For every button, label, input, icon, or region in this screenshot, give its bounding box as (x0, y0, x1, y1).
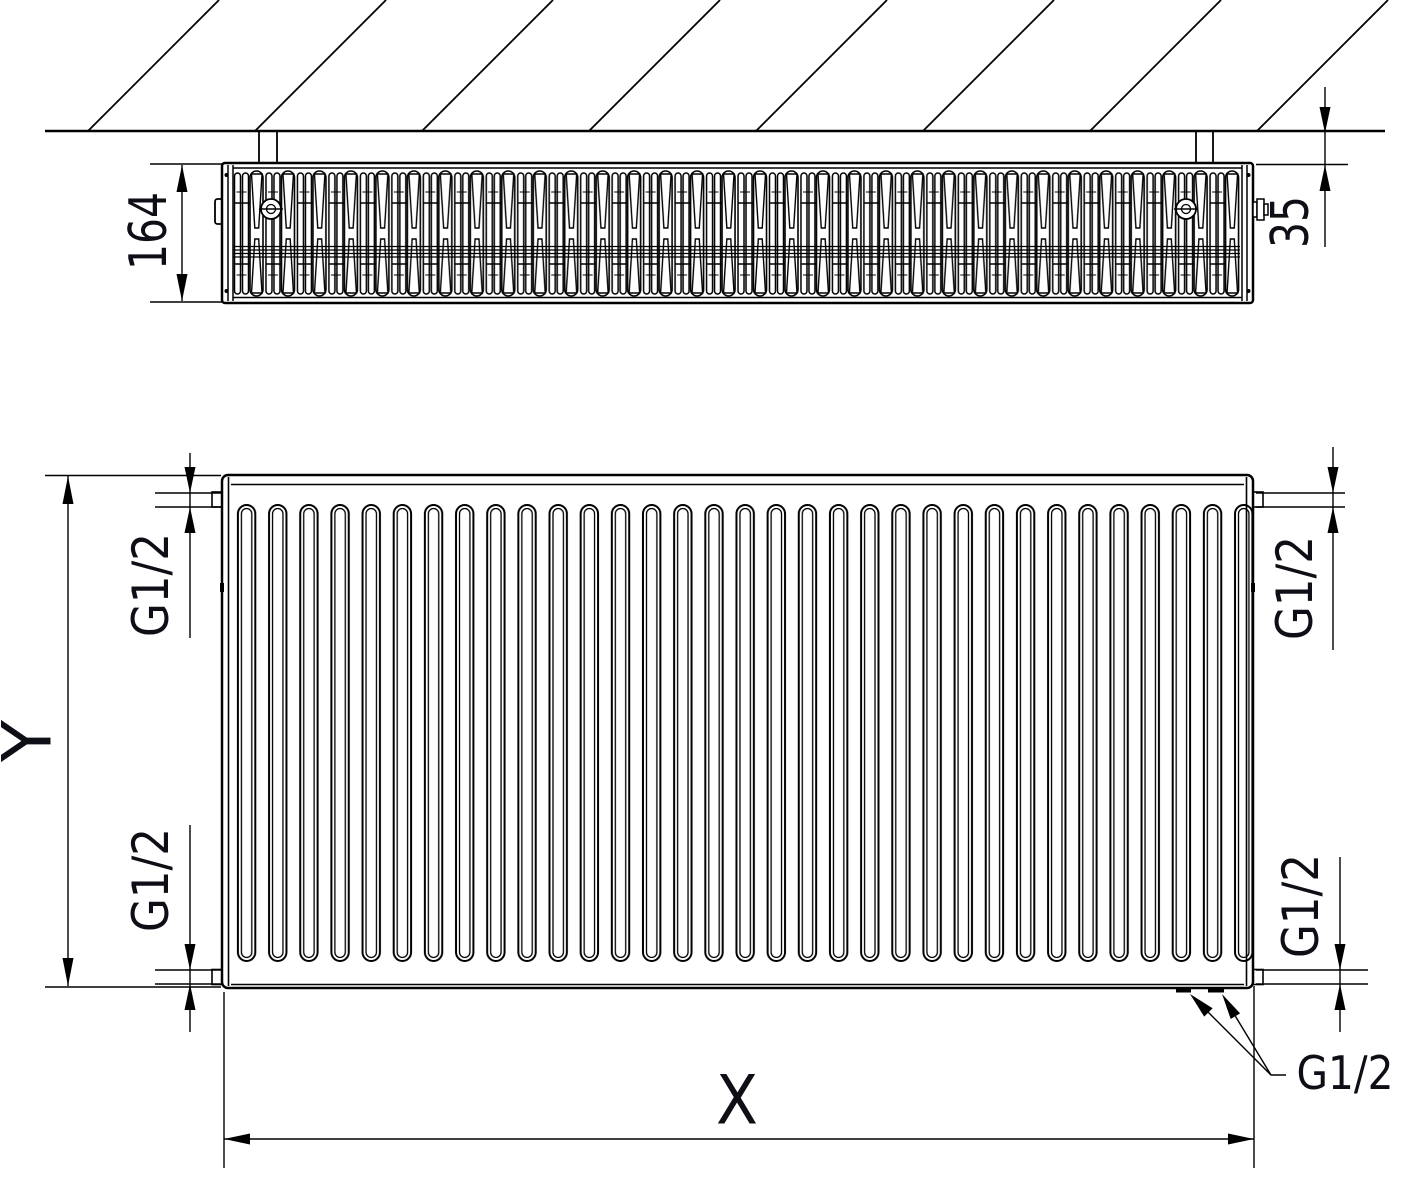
dim-height-label: Y (0, 720, 68, 763)
arrow-left-icon (224, 1134, 250, 1145)
arrow-down-icon (1328, 467, 1339, 493)
convector-fins (233, 170, 1240, 297)
leader-conn-bottom-label: G1/2 (1297, 1046, 1394, 1100)
arrow-down-icon (1320, 107, 1331, 133)
wall-section (45, 0, 1388, 131)
front-channels (231, 504, 1253, 963)
dim-wall-distance-label: 35 (1261, 196, 1321, 248)
arrow-down-icon (185, 467, 196, 493)
arrow-up-icon (185, 984, 196, 1010)
dim-depth: 164 (119, 164, 222, 302)
arrow-down-icon (63, 958, 74, 986)
wall-hatch (88, 0, 1388, 131)
arrow-up-icon (177, 165, 188, 192)
dim-conn-top-left-label: G1/2 (122, 533, 180, 637)
arrow-down-icon (177, 274, 188, 301)
wall-bracket-left (259, 131, 277, 164)
bottom-connection-left (1176, 988, 1191, 993)
dim-conn-top-right-label: G1/2 (1266, 536, 1324, 640)
arrow-right-icon (1228, 1134, 1254, 1145)
side-tab-left (220, 583, 224, 592)
arrow-up-icon (185, 507, 196, 533)
dim-depth-label: 164 (119, 192, 179, 270)
dim-conn-top-right: G1/2 (1256, 447, 1345, 650)
dim-length: X (224, 986, 1254, 1168)
dim-conn-top-left: G1/2 (122, 453, 221, 638)
dim-conn-bottom-left: G1/2 (122, 825, 221, 1032)
drawing-canvas: 164 35 Y (0, 0, 1427, 1179)
arrow-down-icon (185, 944, 196, 970)
bottom-connection-right (1208, 988, 1224, 993)
arrow-up-icon (1328, 507, 1339, 533)
dim-conn-bottom-right: G1/2 (1256, 854, 1368, 1032)
dim-height: Y (0, 476, 221, 988)
leader-conn-bottom: G1/2 (1190, 994, 1394, 1100)
dim-wall-distance: 35 (1256, 87, 1348, 248)
dim-length-label: X (716, 1062, 758, 1141)
arrow-up-icon (63, 476, 74, 504)
leader-arrow-icon (1222, 994, 1240, 1019)
top-view-radiator (215, 131, 1268, 303)
front-view-radiator (212, 475, 1263, 993)
arrow-down-icon (1335, 944, 1346, 970)
arrow-up-icon (1335, 984, 1346, 1010)
arrow-up-icon (1320, 165, 1331, 191)
technical-drawing: 164 35 Y (0, 0, 1427, 1179)
dim-conn-bottom-left-label: G1/2 (122, 828, 180, 932)
side-tab-right (1251, 583, 1255, 592)
wall-bracket-right (1196, 131, 1213, 164)
dim-conn-bottom-right-label: G1/2 (1272, 854, 1330, 958)
